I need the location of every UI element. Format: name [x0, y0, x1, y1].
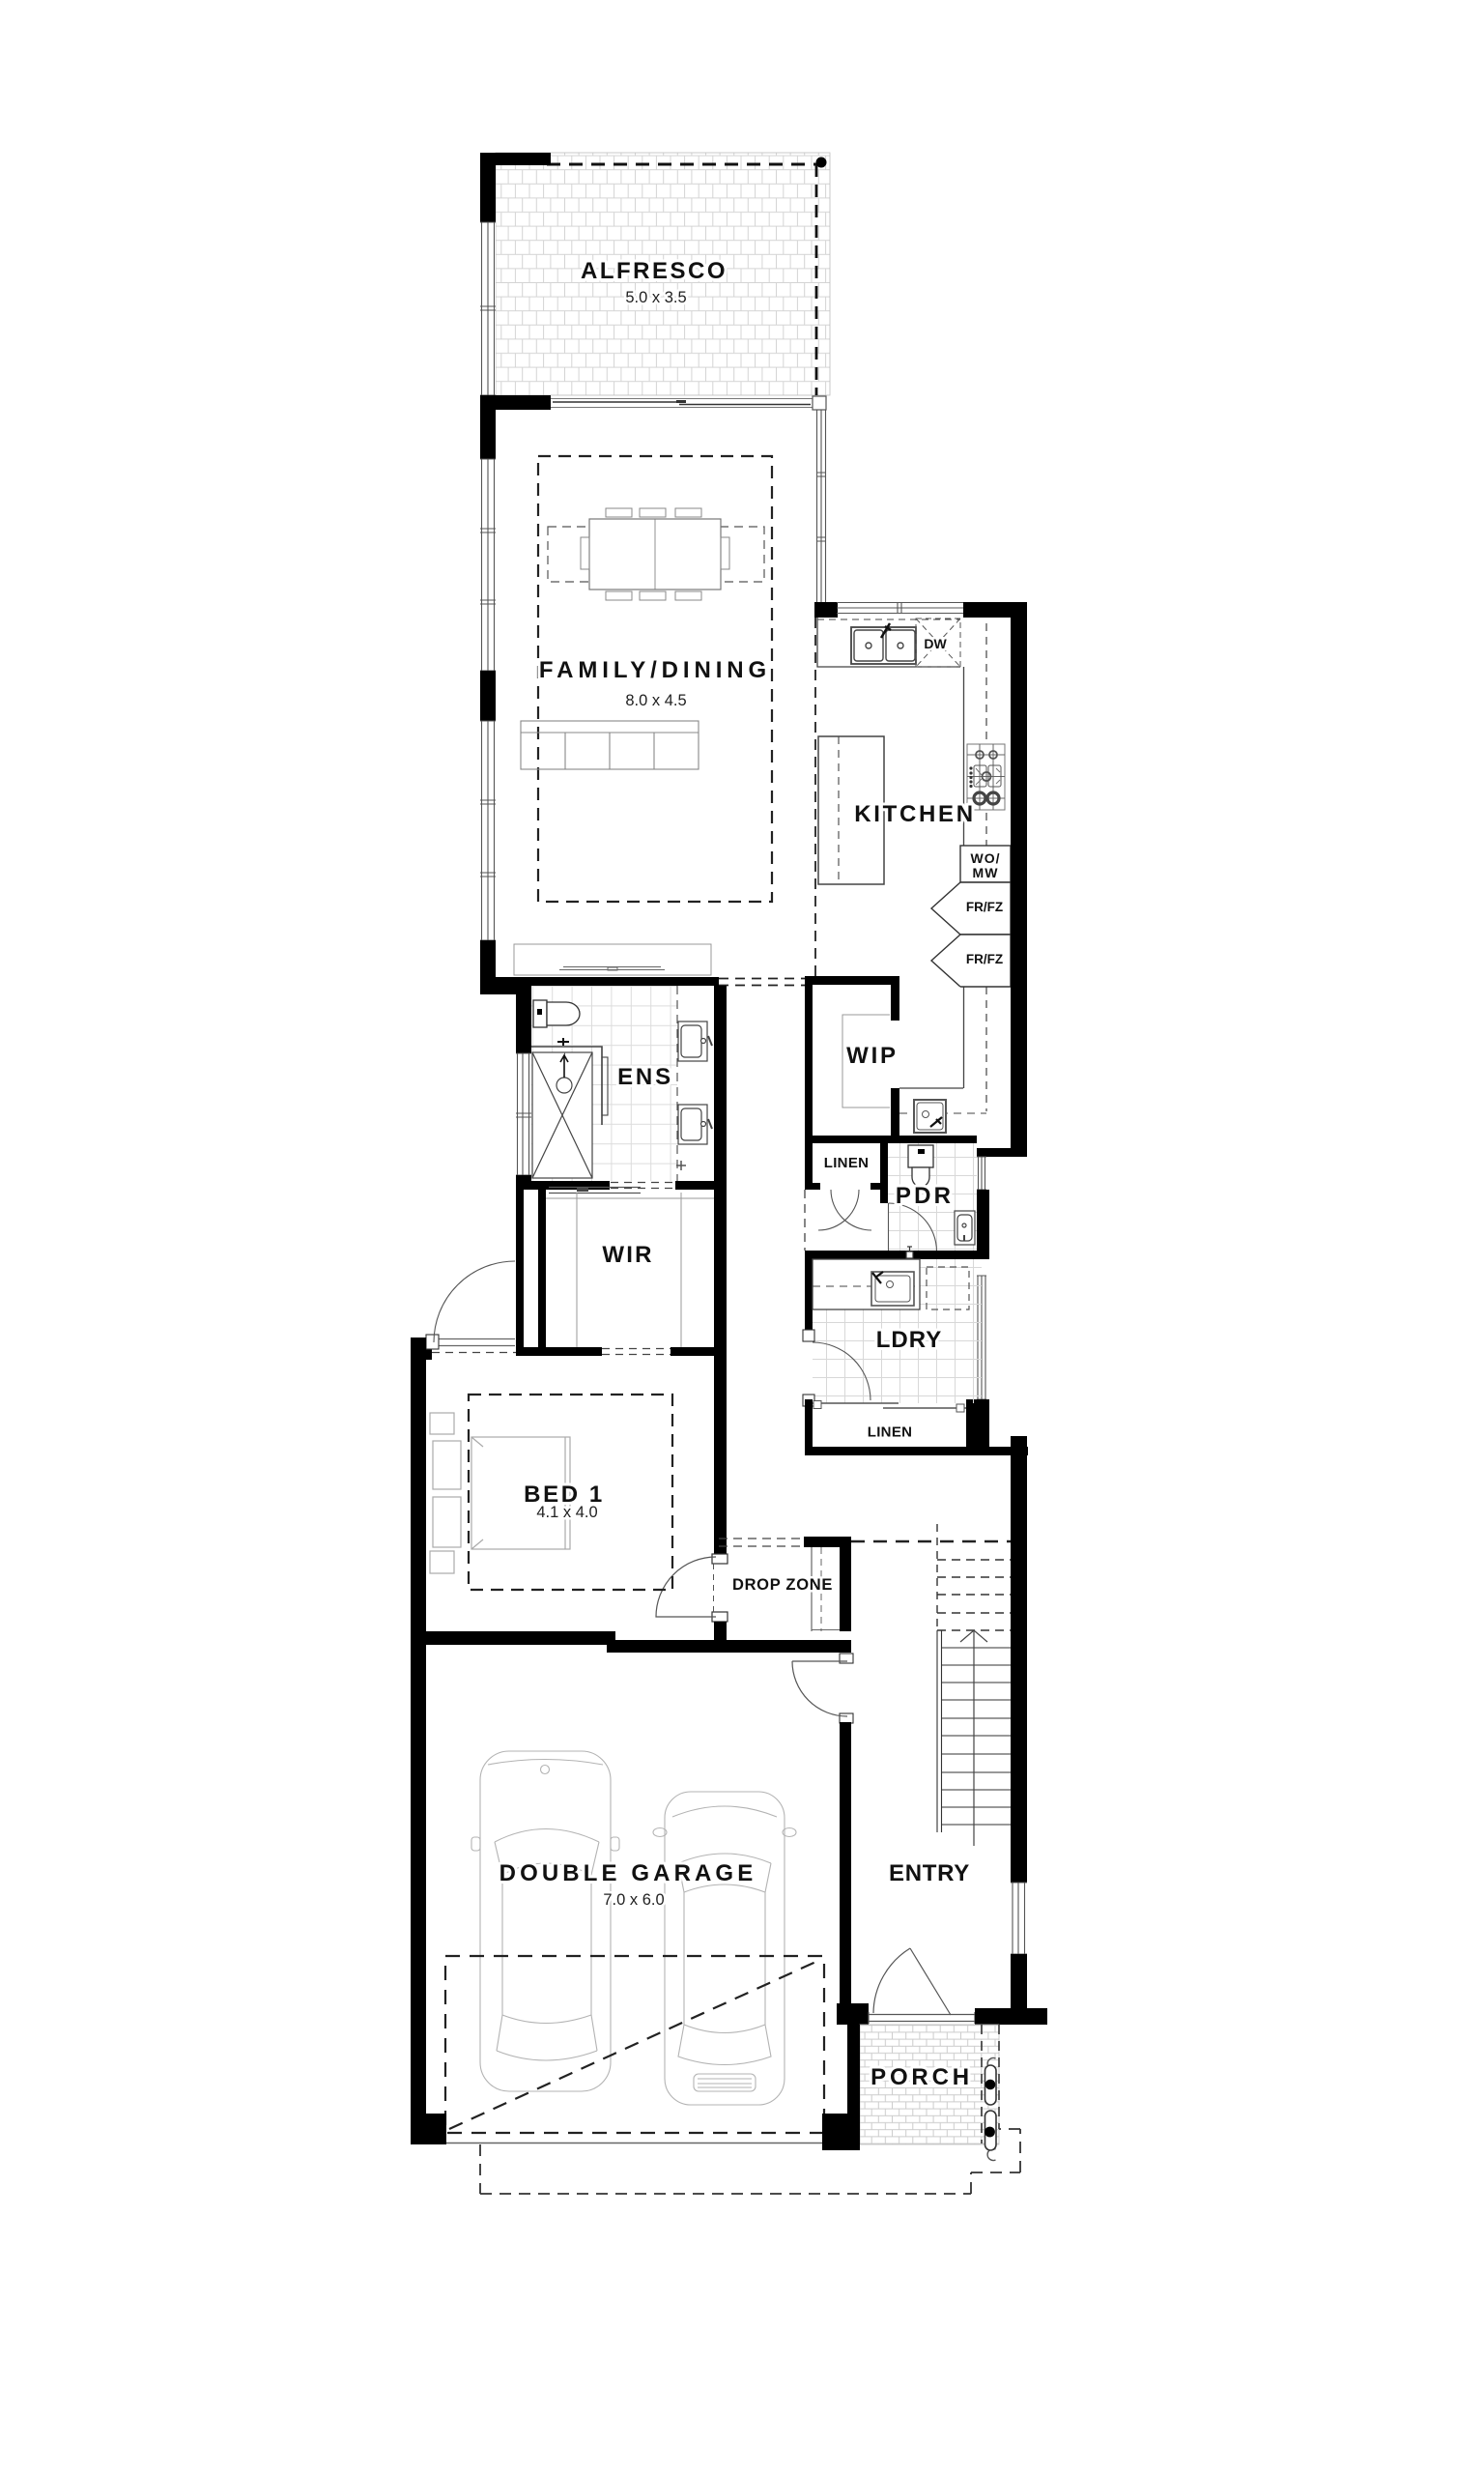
svg-text:FAMILY/DINING: FAMILY/DINING	[539, 657, 771, 683]
svg-text:PORCH: PORCH	[870, 2064, 973, 2090]
svg-text:DW: DW	[924, 636, 947, 651]
svg-text:DROP ZONE: DROP ZONE	[732, 1576, 833, 1594]
svg-text:7.0 x 6.0: 7.0 x 6.0	[603, 1891, 664, 1909]
svg-text:FR/FZ: FR/FZ	[966, 900, 1003, 914]
svg-text:5.0 x 3.5: 5.0 x 3.5	[625, 289, 686, 306]
svg-text:8.0 x 4.5: 8.0 x 4.5	[625, 692, 686, 709]
svg-text:MW: MW	[973, 865, 999, 880]
svg-text:WIP: WIP	[846, 1043, 899, 1069]
svg-text:DOUBLE GARAGE: DOUBLE GARAGE	[499, 1860, 757, 1886]
svg-text:4.1 x 4.0: 4.1 x 4.0	[536, 1504, 597, 1521]
svg-text:ENTRY: ENTRY	[889, 1860, 970, 1886]
svg-text:LINEN: LINEN	[868, 1424, 913, 1441]
svg-text:ENS: ENS	[617, 1064, 673, 1090]
svg-text:WO/: WO/	[971, 850, 1001, 866]
svg-text:KITCHEN: KITCHEN	[854, 801, 976, 827]
svg-text:FR/FZ: FR/FZ	[966, 952, 1003, 966]
svg-text:ALFRESCO: ALFRESCO	[581, 258, 728, 284]
svg-text:WIR: WIR	[602, 1242, 653, 1268]
svg-text:LDRY: LDRY	[876, 1327, 942, 1353]
svg-text:PDR: PDR	[896, 1183, 954, 1209]
svg-text:LINEN: LINEN	[824, 1155, 870, 1171]
